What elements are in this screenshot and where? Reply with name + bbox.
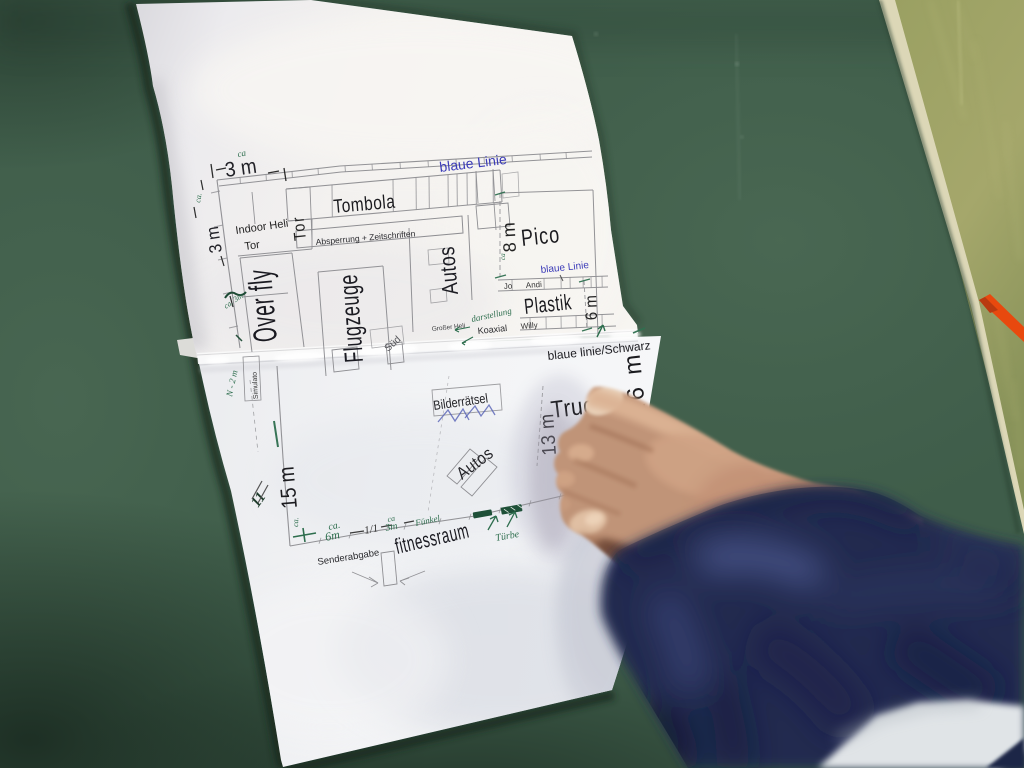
- svg-text:Jo: Jo: [504, 281, 514, 291]
- svg-text:Flugzeuge: Flugzeuge: [334, 273, 369, 363]
- svg-text:Willy: Willy: [520, 321, 538, 331]
- svg-text:Plastik: Plastik: [523, 289, 573, 318]
- svg-text:Tor: Tor: [289, 214, 310, 241]
- svg-text:Simulato: Simulato: [252, 372, 260, 400]
- svg-text:ca.: ca.: [193, 192, 204, 203]
- svg-text:ca.: ca.: [291, 517, 300, 527]
- svg-text:Andi: Andi: [526, 280, 543, 290]
- svg-text:Autos: Autos: [435, 245, 463, 295]
- svg-text:3 m: 3 m: [224, 155, 259, 182]
- svg-text:8 m: 8 m: [498, 222, 520, 253]
- svg-text:6 m: 6 m: [583, 295, 602, 321]
- svg-text:Over fly: Over fly: [240, 267, 284, 343]
- svg-text:15 m: 15 m: [274, 465, 302, 509]
- svg-text:Pico: Pico: [520, 222, 561, 252]
- svg-text:Tor: Tor: [244, 239, 261, 253]
- svg-text:3 m: 3 m: [202, 225, 226, 254]
- svg-text:ca: ca: [499, 253, 507, 260]
